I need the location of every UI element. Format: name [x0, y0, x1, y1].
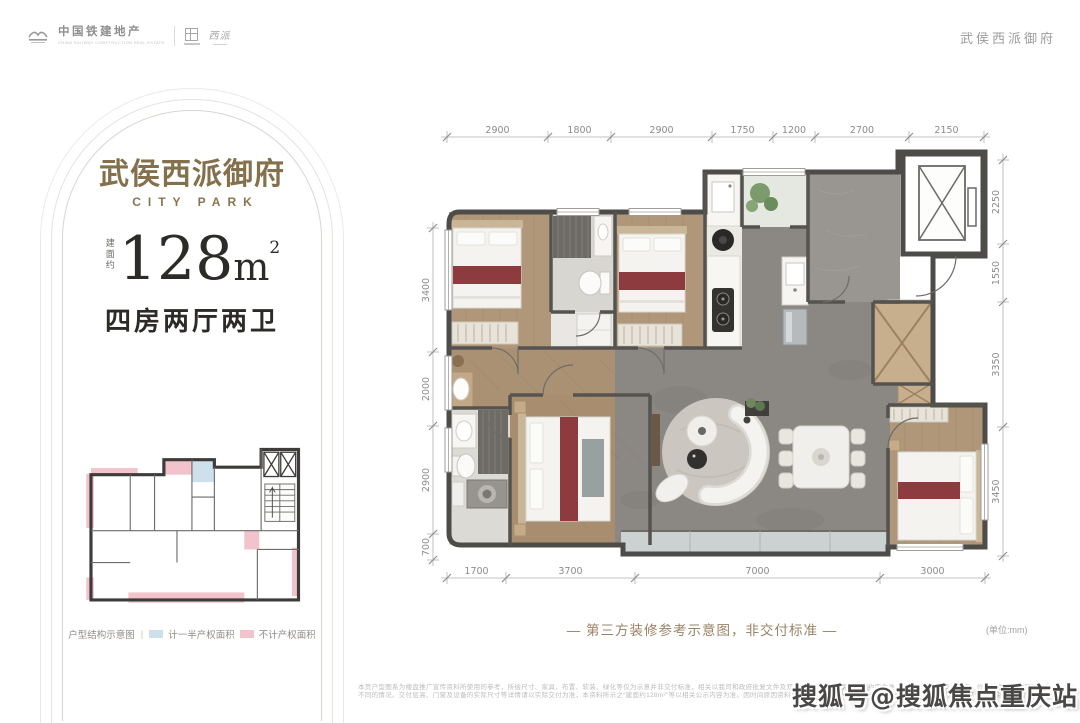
svg-text:3350: 3350: [991, 352, 1002, 376]
svg-text:2900: 2900: [485, 125, 509, 136]
svg-text:1700: 1700: [464, 566, 488, 577]
floor-plan: 2900180029001750120027002150170037007000…: [0, 0, 1080, 719]
balcony: [621, 531, 888, 554]
unit-note: (单位:mm): [986, 623, 1028, 636]
dining-furniture: [779, 426, 865, 488]
bedroom-b-furniture: [617, 226, 687, 346]
svg-text:1750: 1750: [730, 125, 754, 136]
svg-text:1550: 1550: [991, 261, 1002, 285]
watermark: 搜狐号@搜狐焦点重庆站: [792, 677, 1078, 713]
svg-text:3400: 3400: [421, 278, 432, 302]
plan-caption: — 第三方装修参考示意图，非交付标准 —: [552, 619, 852, 639]
svg-text:2250: 2250: [991, 190, 1002, 214]
svg-text:700: 700: [421, 538, 432, 556]
svg-text:2900: 2900: [421, 468, 432, 492]
svg-text:2000: 2000: [421, 377, 432, 401]
svg-text:3450: 3450: [991, 479, 1002, 503]
svg-text:1800: 1800: [567, 125, 591, 136]
svg-text:2150: 2150: [934, 125, 958, 136]
bedroom-a-furniture: [451, 220, 523, 344]
svg-text:3700: 3700: [558, 566, 582, 577]
svg-text:2700: 2700: [850, 125, 874, 136]
svg-text:1200: 1200: [782, 125, 806, 136]
svg-text:3000: 3000: [920, 566, 944, 577]
svg-text:2900: 2900: [649, 125, 673, 136]
svg-text:7000: 7000: [745, 566, 769, 577]
